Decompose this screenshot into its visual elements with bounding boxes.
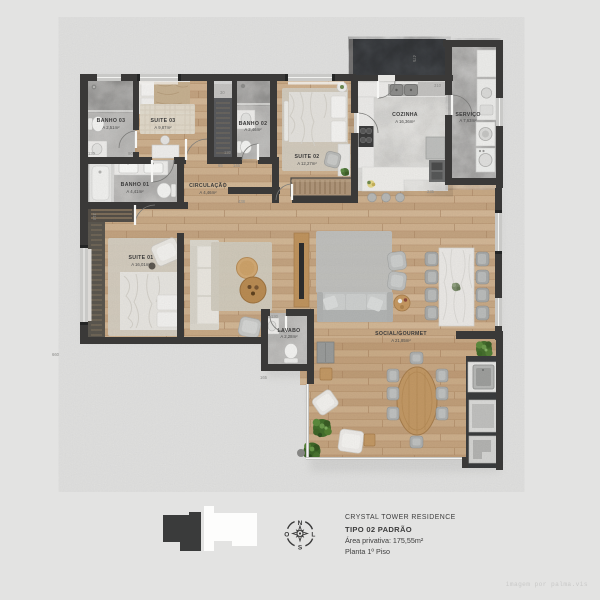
svg-text:310: 310 — [434, 83, 442, 88]
svg-text:A 2,46m²: A 2,46m² — [244, 127, 262, 132]
svg-text:A 21,85m²: A 21,85m² — [391, 338, 411, 343]
svg-text:A 2,28m²: A 2,28m² — [280, 334, 298, 339]
svg-text:imagem por palma.vis: imagem por palma.vis — [506, 581, 588, 588]
svg-text:SUITE 01: SUITE 01 — [129, 255, 154, 261]
svg-text:A 7,63m²: A 7,63m² — [459, 118, 477, 123]
svg-text:SUITE 03: SUITE 03 — [151, 118, 176, 124]
svg-text:A 16,01m²: A 16,01m² — [131, 262, 151, 267]
svg-text:BANHO 01: BANHO 01 — [121, 182, 150, 188]
svg-text:SOCIAL/GOURMET: SOCIAL/GOURMET — [375, 331, 427, 337]
svg-text:BANHO 03: BANHO 03 — [97, 118, 126, 124]
svg-text:N: N — [298, 520, 303, 527]
svg-text:A 4,46m²: A 4,46m² — [199, 190, 217, 195]
svg-text:TIPO 02 PADRÃO: TIPO 02 PADRÃO — [345, 525, 412, 534]
svg-text:CRYSTAL TOWER RESIDENCE: CRYSTAL TOWER RESIDENCE — [345, 514, 456, 521]
svg-text:30: 30 — [220, 90, 225, 95]
svg-text:A 12,27m²: A 12,27m² — [297, 161, 317, 166]
svg-text:Planta 1º Piso: Planta 1º Piso — [345, 547, 390, 556]
svg-text:438: 438 — [238, 199, 246, 204]
svg-text:SUITE 02: SUITE 02 — [295, 154, 320, 160]
svg-text:145: 145 — [233, 163, 241, 168]
svg-text:130: 130 — [88, 151, 96, 156]
svg-text:660: 660 — [52, 352, 60, 357]
svg-text:90: 90 — [128, 151, 133, 156]
svg-text:130: 130 — [271, 314, 279, 319]
svg-text:475: 475 — [412, 55, 417, 63]
svg-text:65: 65 — [218, 163, 223, 168]
svg-text:L: L — [311, 532, 315, 539]
svg-text:O: O — [284, 532, 289, 539]
svg-text:COZINHA: COZINHA — [392, 112, 418, 118]
svg-text:165: 165 — [260, 375, 268, 380]
svg-text:CIRCULAÇÃO: CIRCULAÇÃO — [189, 182, 227, 189]
svg-text:Área privativa: 175,55m²: Área privativa: 175,55m² — [345, 536, 424, 545]
svg-text:A 4,41m²: A 4,41m² — [126, 189, 144, 194]
svg-text:130: 130 — [224, 150, 232, 155]
svg-text:A 2,51m²: A 2,51m² — [102, 125, 120, 130]
svg-text:A 9,87m²: A 9,87m² — [154, 125, 172, 130]
svg-text:A 16,36m²: A 16,36m² — [395, 119, 415, 124]
svg-text:313: 313 — [92, 213, 97, 221]
svg-text:235: 235 — [427, 189, 435, 194]
svg-text:S: S — [298, 544, 303, 551]
